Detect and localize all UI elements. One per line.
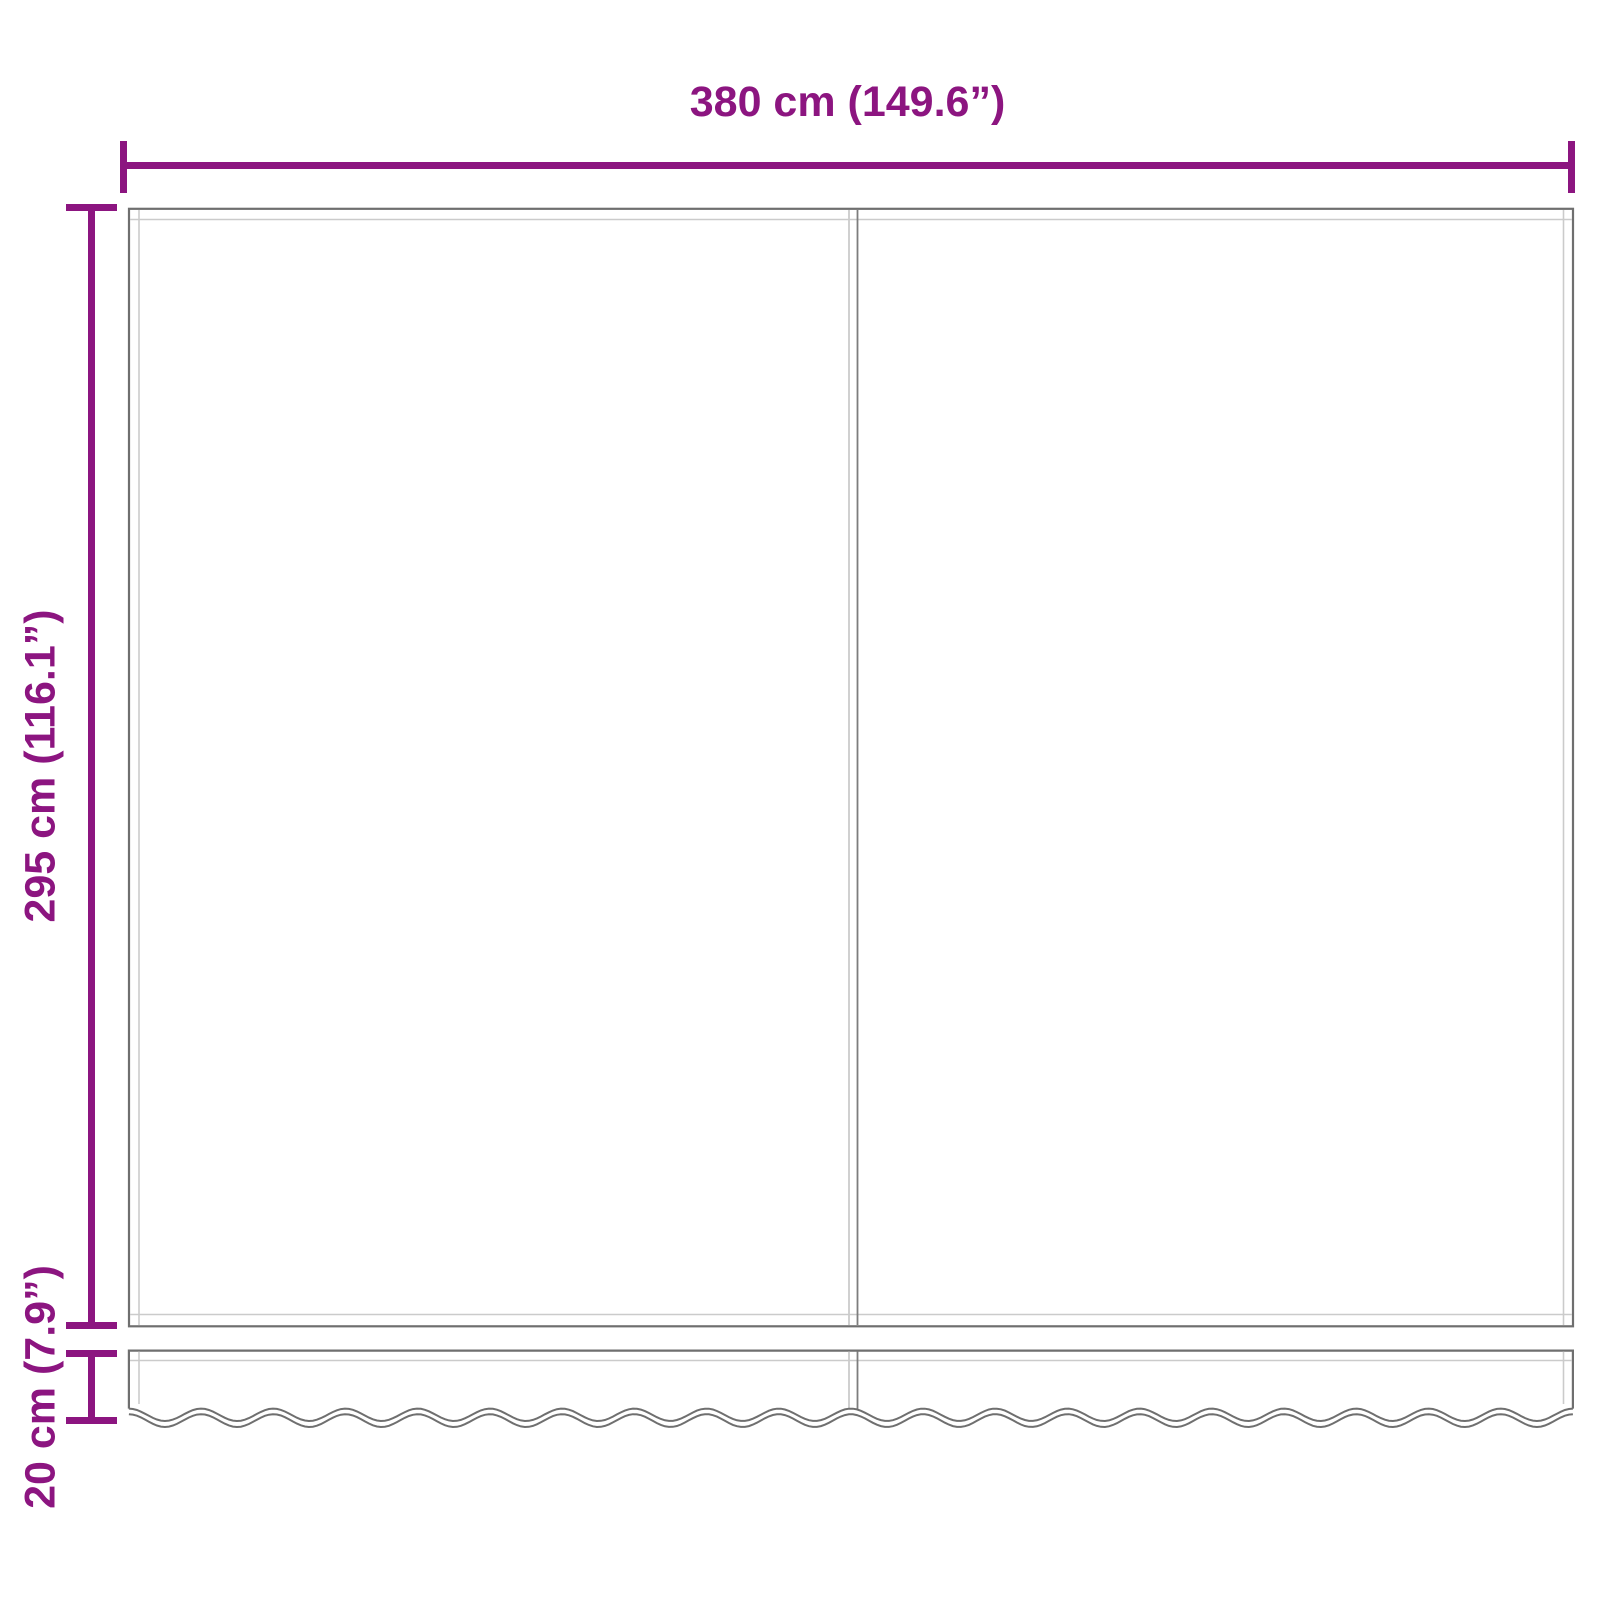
valance-dimension-line xyxy=(88,1353,95,1421)
height-dimension-line xyxy=(88,207,95,1326)
main-panel xyxy=(129,209,1573,1327)
width-dimension-cap-left xyxy=(120,141,127,193)
width-dimension-cap-right xyxy=(1568,141,1575,193)
width-dimension-line xyxy=(123,162,1572,169)
valance-scallop-lower xyxy=(129,1414,1573,1427)
height-dimension-cap-bottom xyxy=(66,1322,117,1329)
valance-dimension-label: 20 cm (7.9”) xyxy=(20,1265,63,1509)
valance xyxy=(129,1351,1573,1427)
width-dimension-label: 380 cm (149.6”) xyxy=(123,81,1572,124)
valance-dimension-cap-bottom xyxy=(66,1417,117,1424)
valance-dimension-cap-top xyxy=(66,1350,117,1357)
main-panel-outline xyxy=(129,209,1573,1327)
height-dimension-label: 295 cm (116.1”) xyxy=(20,609,63,922)
valance-outline xyxy=(129,1351,1573,1409)
height-dimension-cap-top xyxy=(66,204,117,211)
fabric-drawing xyxy=(0,0,1600,1600)
awning-fabric-dimension-diagram: 380 cm (149.6”) 295 cm (116.1”) 20 cm (7… xyxy=(0,0,1600,1600)
